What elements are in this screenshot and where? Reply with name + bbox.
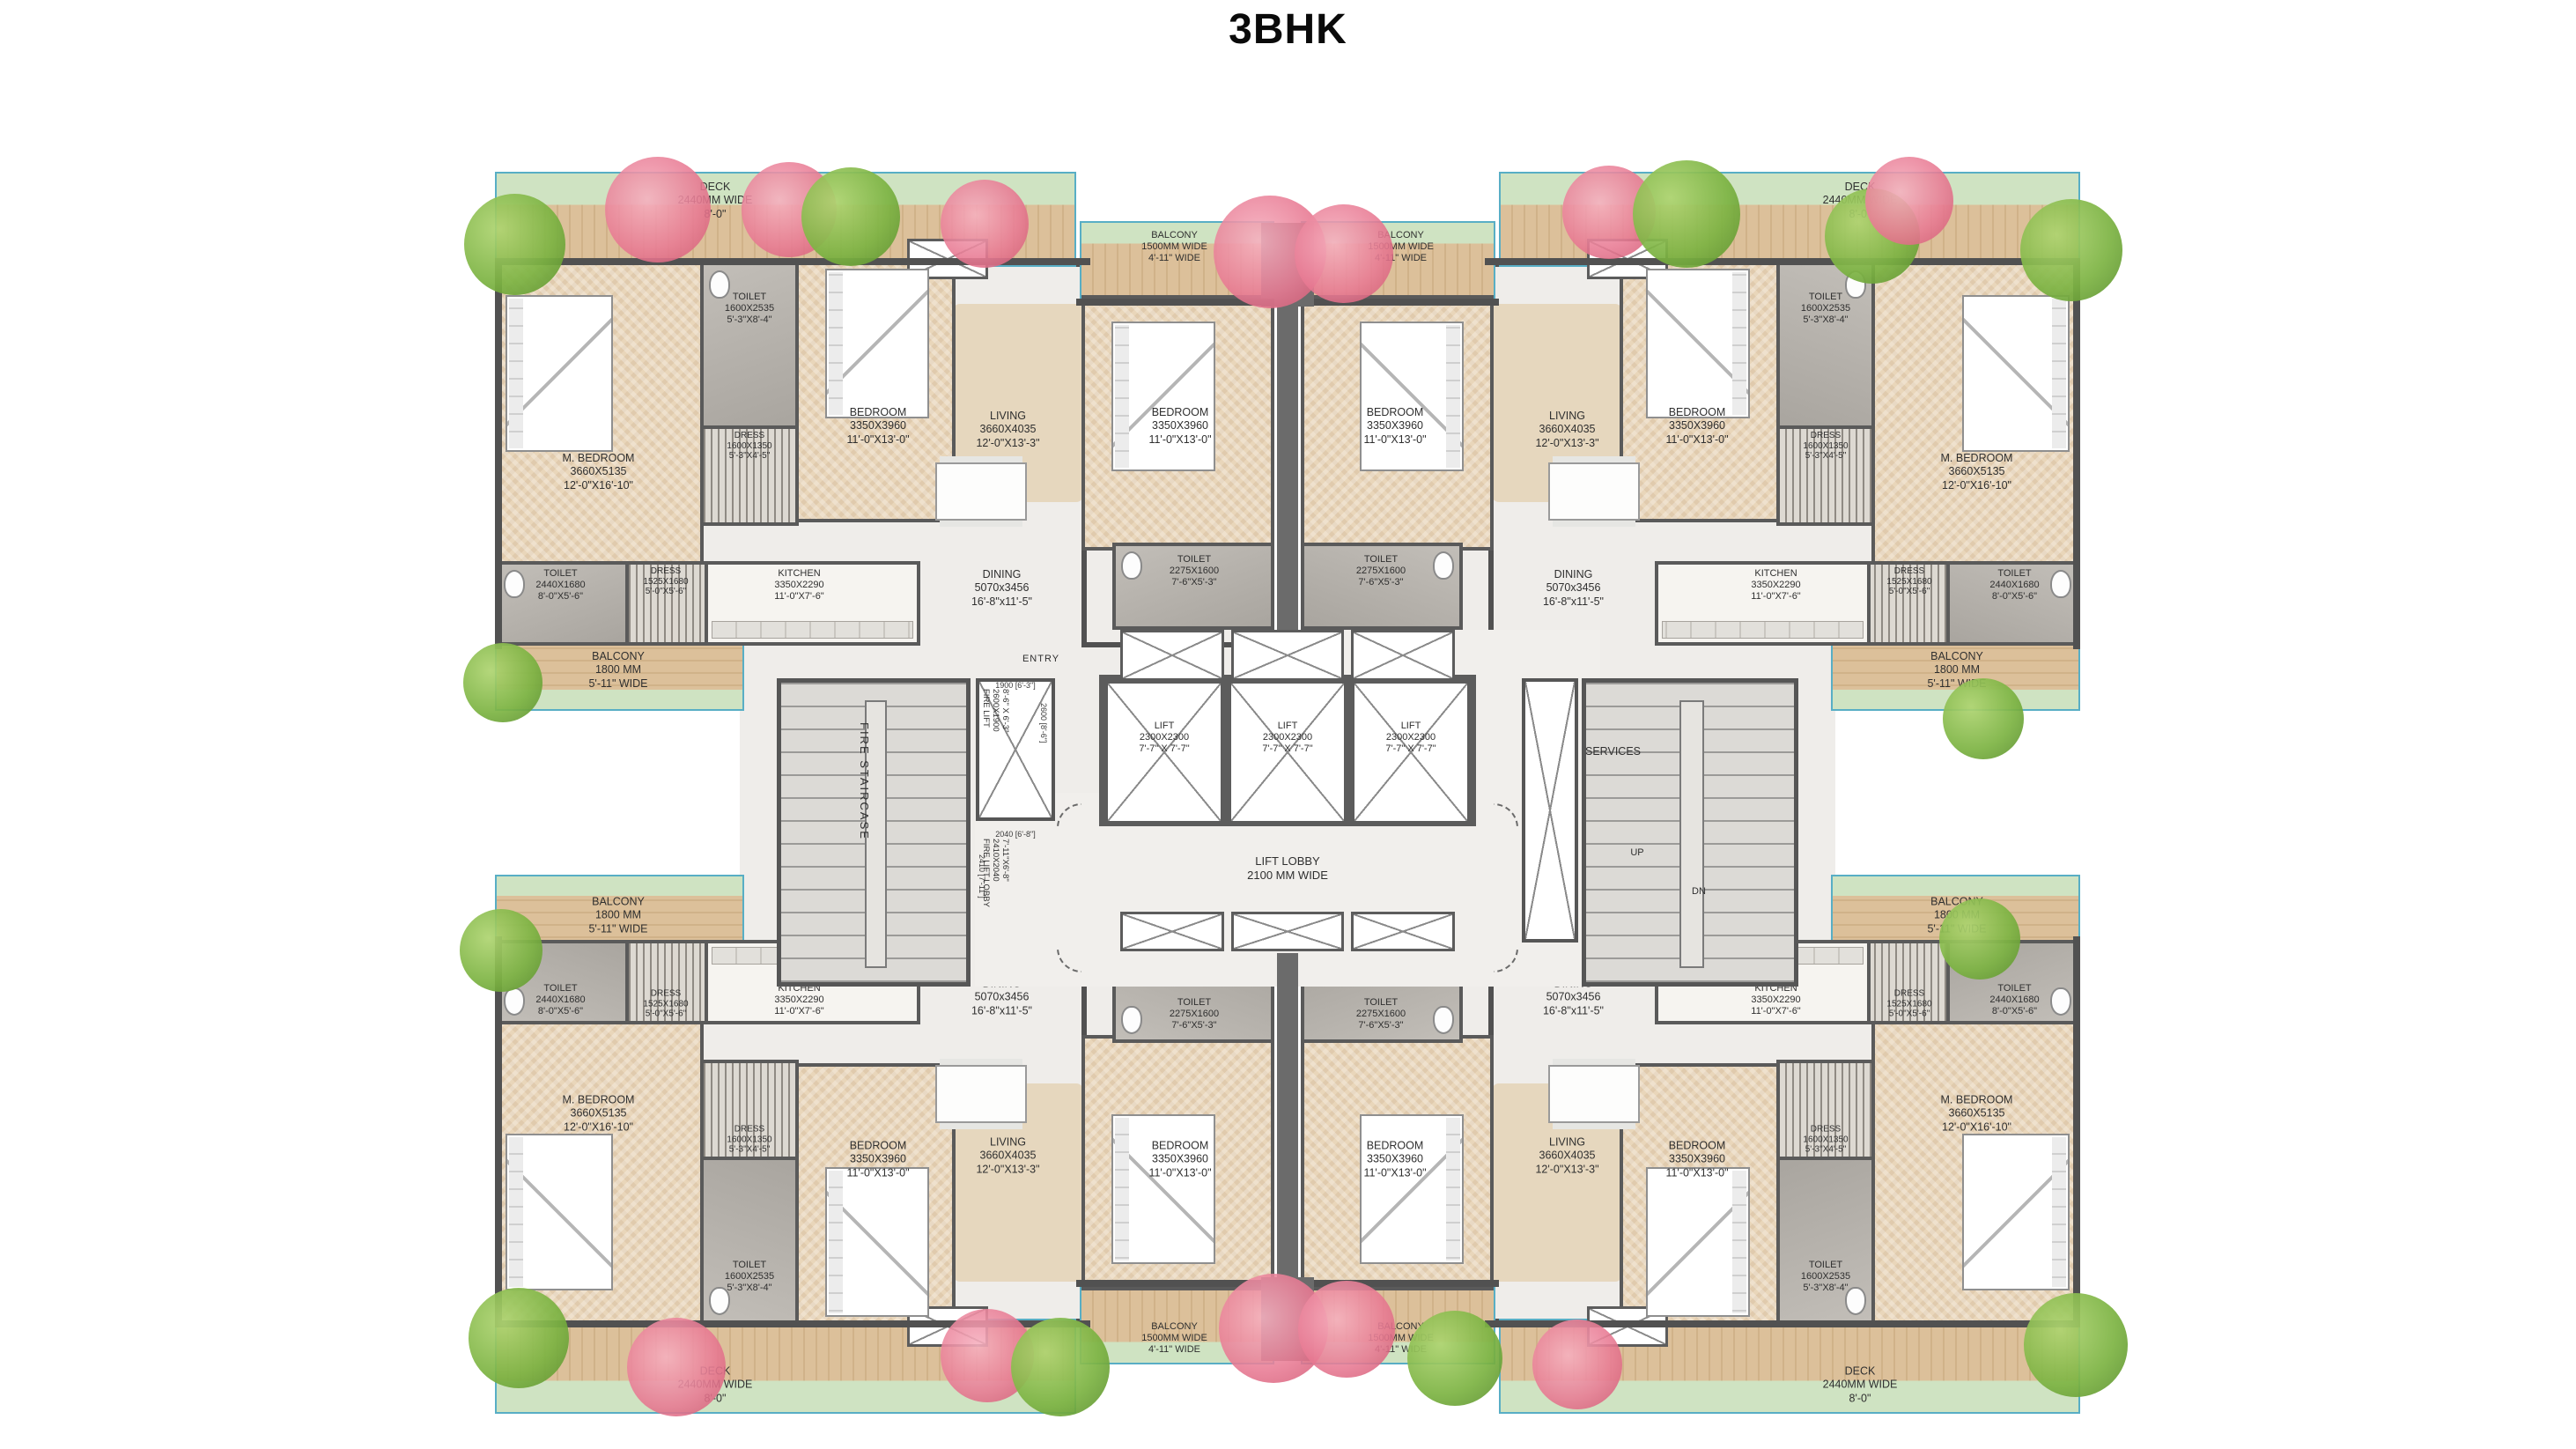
tree-icon [2020,199,2122,301]
master-bedroom-label: M. BEDROOM3660X513512'-0"X16'-10" [1886,1093,2067,1134]
dimension-label: 2040 [6'-8"] [969,830,1062,839]
center-toilet-label: TOILET2275X16007'-6"X5'-3" [1118,997,1270,1031]
flower-tree-icon [605,157,711,262]
center-toilet-label: TOILET2275X16007'-6"X5'-3" [1305,997,1457,1031]
bed-icon [1646,1167,1750,1317]
dining-table-icon [1548,462,1640,521]
lift-label: LIFT2300X23007'-7" X 7'-7" [1354,721,1467,755]
bed-icon [1111,1114,1215,1264]
tree-icon [801,167,900,266]
balcony-side-label: BALCONY1800 MM5'-11" WIDE [1856,650,2058,691]
bedroom-3-label: BEDROOM3350X396011'-0"X13'-0" [1092,1139,1268,1179]
flower-tree-icon [1865,157,1953,245]
duct-shaft [1231,630,1344,681]
bed-icon [1360,322,1464,471]
common-toilet-label: TOILET2440X16808'-0"X5'-6" [1951,568,2078,603]
kitchen-label: KITCHEN3350X229011'-0"X7'-6" [1699,568,1853,603]
bedroom-2-label: BEDROOM3350X396011'-0"X13'-0" [1627,406,1768,447]
lift-label: LIFT2300X23007'-7" X 7'-7" [1108,721,1221,755]
dimension-label: 2410 [7'-11"] [978,854,986,898]
fire-lift-label: FIRE LIFT2600X19008'-6" X 6'-3" [981,689,1010,812]
bedroom-3-label: BEDROOM3350X396011'-0"X13'-0" [1092,406,1268,447]
duct-shaft [1120,630,1224,681]
tree-icon [460,909,543,992]
kitchen-label: KITCHEN3350X229011'-0"X7'-6" [722,568,876,603]
dining-table-icon [1548,1065,1640,1123]
bed-icon [1962,295,2070,452]
balcony-side-label: BALCONY1800 MM5'-11" WIDE [517,895,720,935]
common-dress-label: DRESS1525X16805'-0"X5'-6" [624,566,708,597]
tree-icon [2024,1293,2128,1397]
bedroom-2-label: BEDROOM3350X396011'-0"X13'-0" [1627,1139,1768,1179]
services-label: SERVICES [1585,745,1691,758]
tree-icon [463,643,543,722]
bed-icon [1111,322,1215,471]
duct-shaft [1231,912,1344,951]
deck-label: DECK2440MM WIDE8'-0" [1763,1364,1957,1405]
bedroom-3-label: BEDROOM3350X396011'-0"X13'-0" [1307,1139,1483,1179]
floor-plan: LIFT2300X23007'-7" X 7'-7" LIFT2300X2300… [451,150,2124,1436]
fire-staircase-label: FIRE STAIRCASE [858,722,871,947]
common-dress-label: DRESS1525X16805'-0"X5'-6" [1867,566,1952,597]
master-toilet [700,262,799,429]
common-dress-label: DRESS1525X16805'-0"X5'-6" [1867,989,1952,1020]
duct-shaft [1351,630,1455,681]
staircase [1582,678,1798,987]
master-bedroom-label: M. BEDROOM3660X513512'-0"X16'-10" [1886,452,2067,492]
tree-icon [464,194,565,295]
bedroom-2-label: BEDROOM3350X396011'-0"X13'-0" [808,406,948,447]
master-bedroom-label: M. BEDROOM3660X513512'-0"X16'-10" [508,452,689,492]
bed-icon [1646,269,1750,418]
bed-icon [506,1134,613,1290]
master-toilet-label: TOILET1600X25355'-3"X8'-4" [1780,292,1871,326]
bed-icon [825,1167,929,1317]
balcony-side-label: BALCONY1800 MM5'-11" WIDE [517,650,720,691]
master-dress-label: DRESS1600X13505'-3"X4'-5" [1780,1125,1871,1156]
living-label: LIVING3660X403512'-0"X13'-3" [940,410,1076,450]
kitchen-label: KITCHEN3350X229011'-0"X7'-6" [722,983,876,1017]
bedroom-2-label: BEDROOM3350X396011'-0"X13'-0" [808,1139,948,1179]
dining-label: DINING5070x345616'-8"x11'-5" [1496,568,1650,609]
bed-icon [1962,1134,2070,1290]
tree-icon [469,1288,569,1388]
bedroom-3-label: BEDROOM3350X396011'-0"X13'-0" [1307,406,1483,447]
dining-table-icon [935,1065,1027,1123]
bed-icon [1360,1114,1464,1264]
flower-tree-icon [1295,204,1393,303]
common-toilet-label: TOILET2440X16808'-0"X5'-6" [497,568,624,603]
wall [1485,258,2080,265]
tree-icon [1939,898,2020,980]
flower-tree-icon [1298,1281,1395,1378]
master-dress-label: DRESS1600X13505'-3"X4'-5" [704,431,795,462]
center-toilet-label: TOILET2275X16007'-6"X5'-3" [1305,554,1457,588]
kitchen-label: KITCHEN3350X229011'-0"X7'-6" [1699,983,1853,1017]
master-toilet [1776,262,1875,429]
bed-icon [506,295,613,452]
living-label: LIVING3660X403512'-0"X13'-3" [1499,410,1635,450]
lift-label: LIFT2300X23007'-7" X 7'-7" [1231,721,1344,755]
duct-shaft [1351,912,1455,951]
living-label: LIVING3660X403512'-0"X13'-3" [940,1135,1076,1176]
page-title: 3BHK [0,5,2576,54]
master-bedroom-label: M. BEDROOM3660X513512'-0"X16'-10" [508,1093,689,1134]
flower-tree-icon [627,1318,726,1416]
master-dress-label: DRESS1600X13505'-3"X4'-5" [704,1125,795,1156]
master-toilet [1776,1157,1875,1324]
dining-label: DINING5070x345616'-8"x11'-5" [925,568,1079,609]
living-label: LIVING3660X403512'-0"X13'-3" [1499,1135,1635,1176]
dimension-label: 1900 [6'-3"] [969,681,1062,690]
duct-shaft [1120,912,1224,951]
entry-label: ENTRY [1006,654,1076,665]
services-shaft [1522,678,1578,943]
dining-table-icon [935,462,1027,521]
master-toilet-label: TOILET1600X25355'-3"X8'-4" [704,292,795,326]
common-dress-label: DRESS1525X16805'-0"X5'-6" [624,989,708,1020]
flower-tree-icon [941,180,1029,268]
common-toilet-label: TOILET2440X16808'-0"X5'-6" [1951,983,2078,1017]
center-toilet-label: TOILET2275X16007'-6"X5'-3" [1118,554,1270,588]
bed-icon [825,269,929,418]
stair-up-label: UP [1615,847,1659,859]
master-toilet [700,1157,799,1324]
master-toilet-label: TOILET1600X25355'-3"X8'-4" [1780,1260,1871,1294]
flower-tree-icon [1532,1320,1622,1409]
master-dress-label: DRESS1600X13505'-3"X4'-5" [1780,431,1871,462]
tree-icon [1943,678,2024,759]
fire-staircase [777,678,971,987]
dimension-label: 2600 [8'-6"] [1039,703,1048,743]
tree-icon [1011,1318,1110,1416]
tree-icon [1633,160,1740,268]
tree-icon [1407,1311,1502,1406]
stair-down-label: DN [1677,886,1721,898]
lift-lobby-label: LIFT LOBBY2100 MM WIDE [1191,854,1384,883]
master-toilet-label: TOILET1600X25355'-3"X8'-4" [704,1260,795,1294]
